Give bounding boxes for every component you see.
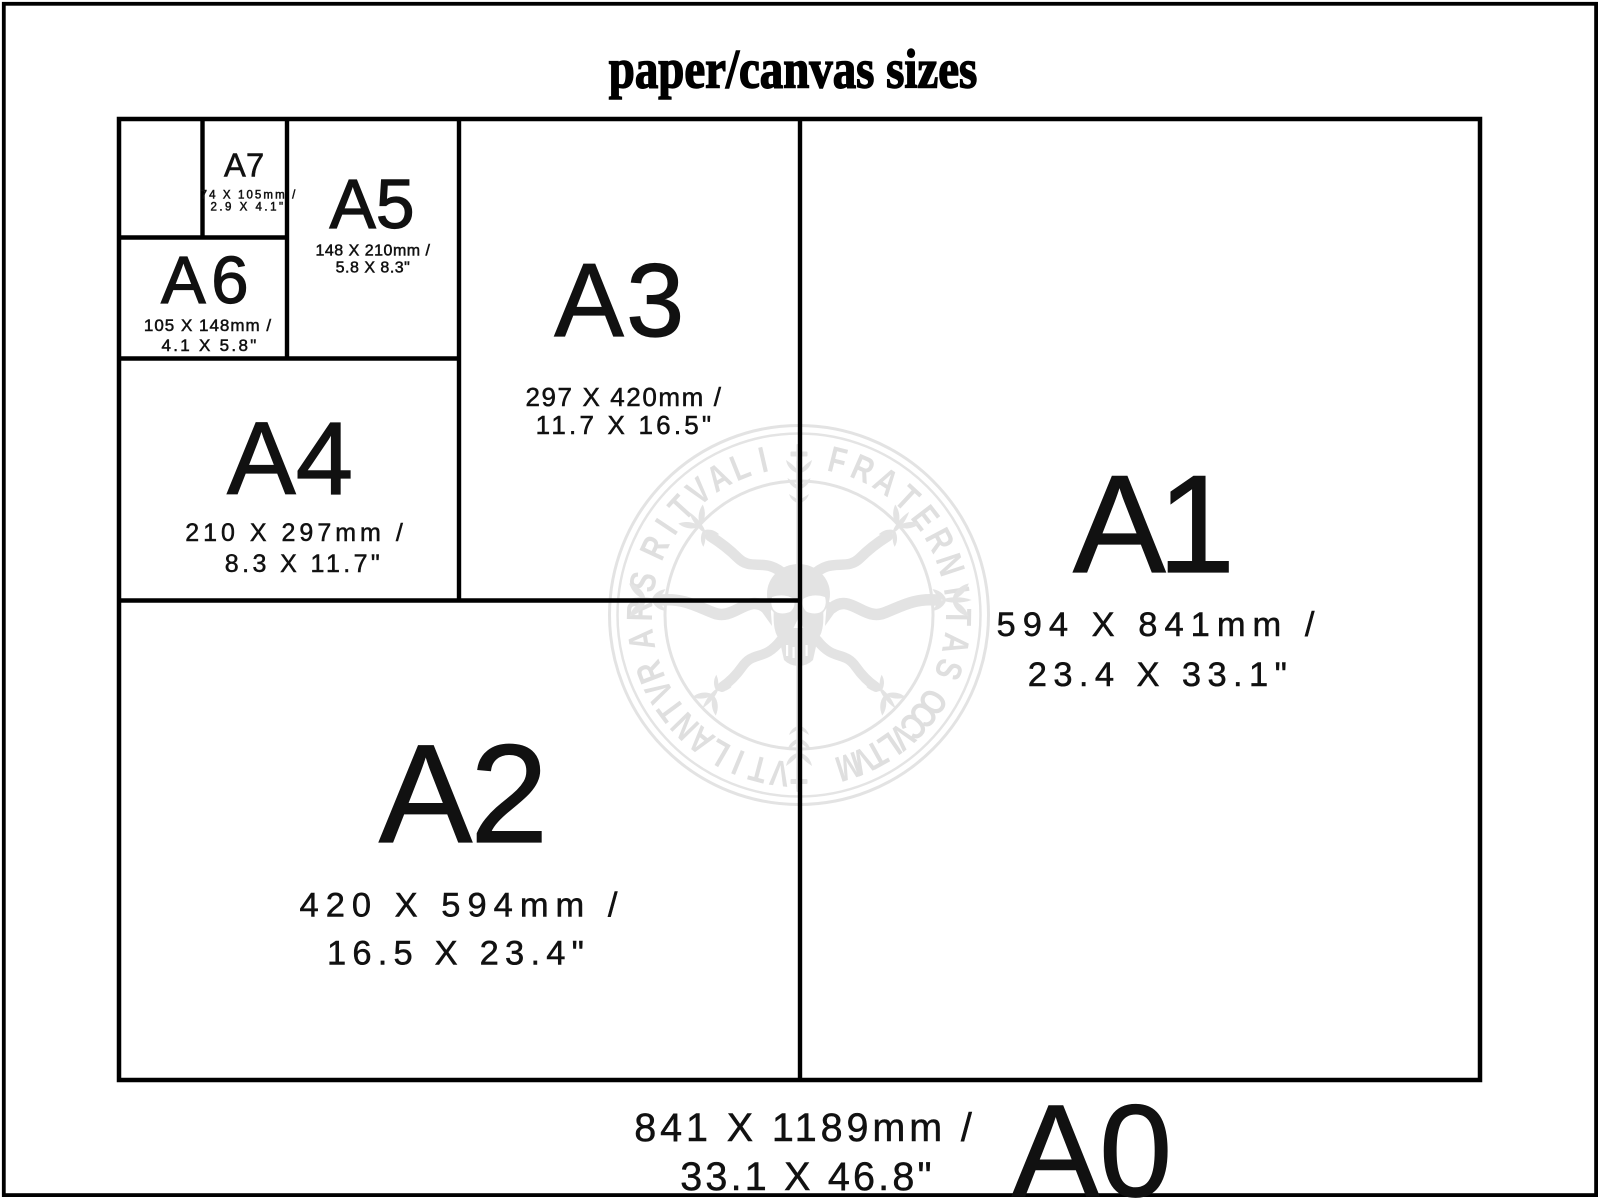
svg-text:16.5 X 23.4": 16.5 X 23.4" — [327, 935, 590, 973]
svg-text:297 X 420mm /: 297 X 420mm / — [525, 382, 722, 412]
svg-text:A2: A2 — [379, 715, 546, 872]
svg-text:4.1 X 5.8": 4.1 X 5.8" — [161, 336, 258, 355]
svg-text:A0: A0 — [1012, 1077, 1172, 1202]
svg-text:A6: A6 — [161, 243, 254, 318]
svg-text:8.3 X 11.7": 8.3 X 11.7" — [225, 550, 383, 578]
svg-text:2.9 X 4.1": 2.9 X 4.1" — [210, 202, 285, 214]
svg-text:594 X 841mm /: 594 X 841mm / — [997, 606, 1322, 644]
svg-text:A1: A1 — [1073, 447, 1229, 602]
svg-text:A3: A3 — [554, 243, 686, 359]
svg-text:74 X 105mm /: 74 X 105mm / — [201, 190, 298, 202]
svg-text:148 X 210mm /: 148 X 210mm / — [316, 243, 431, 260]
svg-text:33.1 X 46.8": 33.1 X 46.8" — [680, 1155, 934, 1199]
svg-text:841 X 1189mm /: 841 X 1189mm / — [634, 1106, 976, 1150]
svg-text:23.4 X 33.1": 23.4 X 33.1" — [1028, 656, 1294, 694]
svg-text:A5: A5 — [329, 165, 414, 243]
svg-text:paper/canvas sizes: paper/canvas sizes — [609, 39, 978, 101]
svg-text:11.7 X 16.5": 11.7 X 16.5" — [536, 410, 715, 440]
svg-text:5.8 X 8.3": 5.8 X 8.3" — [336, 260, 411, 277]
svg-text:105 X 148mm /: 105 X 148mm / — [144, 316, 272, 335]
svg-text:A4: A4 — [227, 401, 353, 516]
svg-text:210 X 297mm /: 210 X 297mm / — [185, 519, 407, 547]
svg-text:A7: A7 — [224, 147, 264, 184]
svg-text:420 X 594mm /: 420 X 594mm / — [300, 887, 625, 925]
